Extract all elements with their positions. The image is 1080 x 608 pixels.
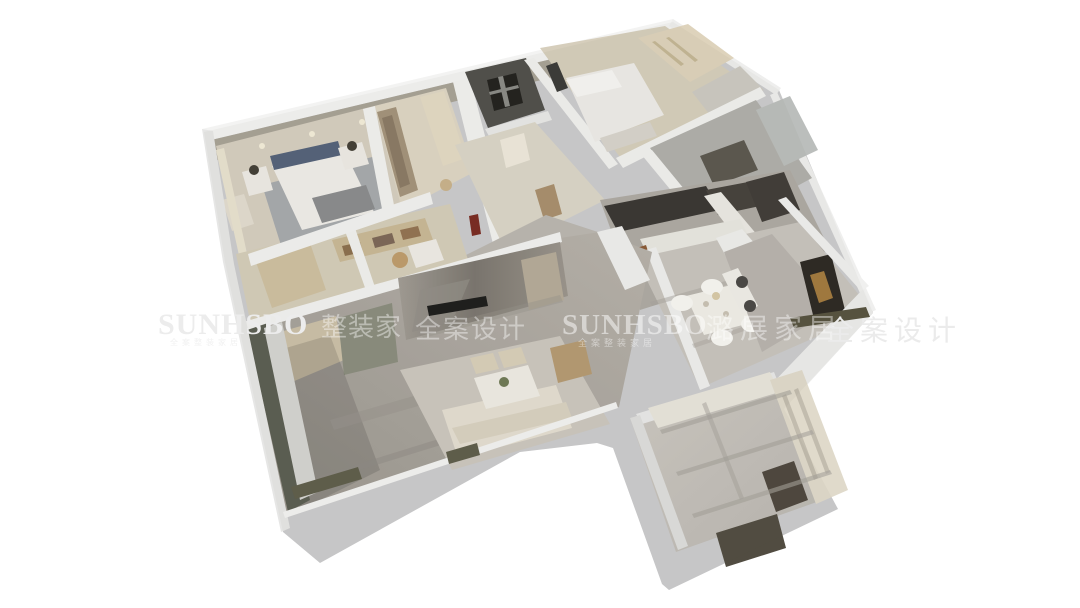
svg-text:SUNHSBO: SUNHSBO — [158, 308, 308, 341]
svg-text:全案设计: 全案设计 — [826, 315, 962, 346]
svg-text:潞展家居: 潞展家居 — [706, 313, 842, 344]
svg-text:SUNHSBO: SUNHSBO — [562, 309, 708, 341]
svg-text:全案整装家居: 全案整装家居 — [578, 337, 656, 348]
svg-text:全案整装家居: 全案整装家居 — [170, 337, 242, 347]
svg-text:整装家: 整装家 — [321, 312, 402, 342]
svg-text:全案设计: 全案设计 — [415, 314, 527, 344]
